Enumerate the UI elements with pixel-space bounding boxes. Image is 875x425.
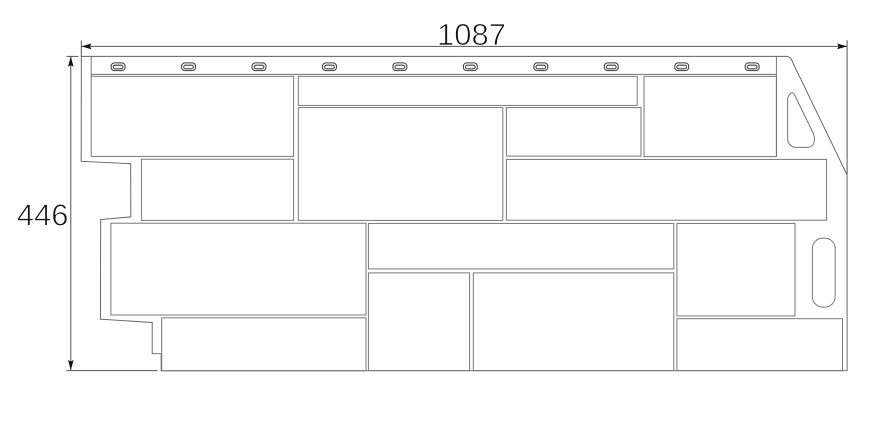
svg-text:1087: 1087 (437, 17, 506, 52)
svg-text:446: 446 (17, 197, 69, 232)
